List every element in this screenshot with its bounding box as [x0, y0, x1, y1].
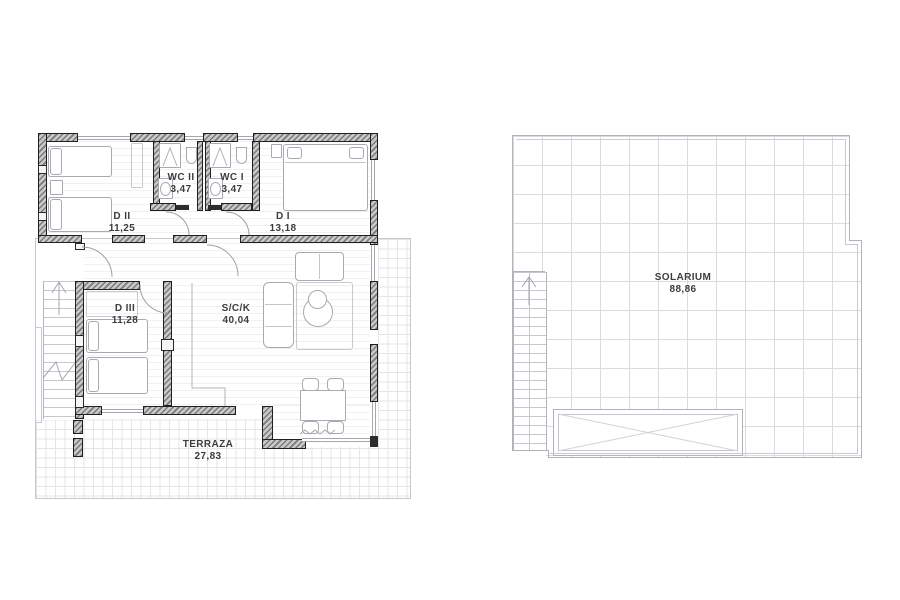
wall-segment [150, 203, 176, 211]
wall-segment [240, 235, 378, 243]
pillow-symbol [50, 199, 62, 230]
wall-corner [370, 436, 378, 447]
wall-segment [370, 281, 378, 330]
solarium-notch-mask [850, 136, 862, 241]
sofa-cushion-line [319, 254, 320, 279]
room-label-wc2: WC II 3,47 [168, 172, 195, 196]
room-label-sck: S/C/K 40,04 [222, 303, 251, 327]
room-label-d1: D I 13,18 [269, 211, 296, 235]
wall-joint [75, 396, 84, 408]
chair-symbol [327, 378, 344, 391]
wall-segment [38, 235, 82, 243]
shower-symbol [209, 143, 231, 168]
pillow-symbol [88, 321, 99, 351]
window [372, 402, 376, 436]
wall-joint [75, 335, 84, 347]
stairs-ground [43, 281, 77, 419]
dining-table-symbol [300, 390, 346, 421]
room-name: WC I [220, 172, 244, 184]
room-label-terraza: TERRAZA 27,83 [183, 439, 234, 463]
pillow-symbol [349, 147, 364, 159]
room-area: 40,04 [222, 315, 251, 327]
sofa-cushion-line [265, 326, 292, 327]
room-area: 11,25 [109, 223, 135, 235]
wall-segment [221, 203, 252, 211]
wall-joint [161, 339, 174, 351]
pillow-symbol [287, 147, 302, 159]
shower-symbol [159, 143, 181, 168]
room-area: 27,83 [183, 451, 234, 463]
planter-strip [35, 327, 42, 423]
wall-segment [38, 133, 47, 243]
room-name: D II [109, 211, 135, 223]
door-threshold [176, 205, 189, 210]
chair-symbol [302, 378, 319, 391]
wall-segment [253, 133, 378, 142]
wall-segment [73, 420, 83, 434]
sofa-symbol [263, 282, 294, 348]
window [185, 136, 203, 140]
room-area: 3,47 [168, 184, 195, 196]
wall-joint [38, 212, 47, 221]
nightstand-symbol [50, 180, 63, 195]
side-table-symbol [308, 290, 327, 309]
stair-opening-inner [558, 414, 738, 451]
nightstand-symbol [271, 144, 282, 158]
window [78, 136, 130, 140]
wall-segment [197, 141, 203, 211]
wall-segment [73, 438, 83, 457]
sofa-cushion-line [265, 304, 292, 305]
room-area: 13,18 [269, 223, 296, 235]
room-name: TERRAZA [183, 439, 234, 451]
wall-segment [370, 344, 378, 402]
window [102, 409, 143, 413]
wall-segment [173, 235, 207, 243]
chair-symbol [302, 421, 319, 434]
room-name: SOLARIUM [655, 272, 712, 284]
floorplan-canvas: D II 11,25 WC II 3,47 WC I 3,47 D I 13,1… [0, 0, 900, 600]
wardrobe-symbol [131, 143, 143, 188]
chair-symbol [327, 421, 344, 434]
window [371, 160, 375, 200]
wall-joint [38, 165, 47, 174]
wall-segment [75, 281, 140, 290]
room-name: S/C/K [222, 303, 251, 315]
toilet-symbol [236, 147, 247, 164]
blanket-line [285, 162, 366, 163]
wall-segment [143, 406, 236, 415]
wall-segment [252, 141, 260, 211]
room-area: 88,86 [655, 284, 712, 296]
room-area: 3,47 [220, 184, 244, 196]
wall-segment [370, 133, 378, 160]
door-threshold [208, 205, 221, 210]
room-name: D III [112, 303, 138, 315]
wall-segment [112, 235, 145, 243]
toilet-symbol [186, 147, 197, 164]
sliding-glass-door [302, 438, 370, 442]
room-label-d2: D II 11,25 [109, 211, 135, 235]
room-label-solarium: SOLARIUM 88,86 [655, 272, 712, 296]
wall-segment [262, 439, 306, 449]
wall-joint [75, 243, 85, 250]
stairs-roof [513, 272, 547, 450]
pillow-symbol [88, 359, 99, 392]
pillow-symbol [50, 148, 62, 175]
room-area: 11,28 [112, 315, 138, 327]
room-label-d3: D III 11,28 [112, 303, 138, 327]
room-label-wc1: WC I 3,47 [220, 172, 244, 196]
window [371, 245, 375, 281]
room-name: WC II [168, 172, 195, 184]
room-name: D I [269, 211, 296, 223]
window [238, 136, 253, 140]
